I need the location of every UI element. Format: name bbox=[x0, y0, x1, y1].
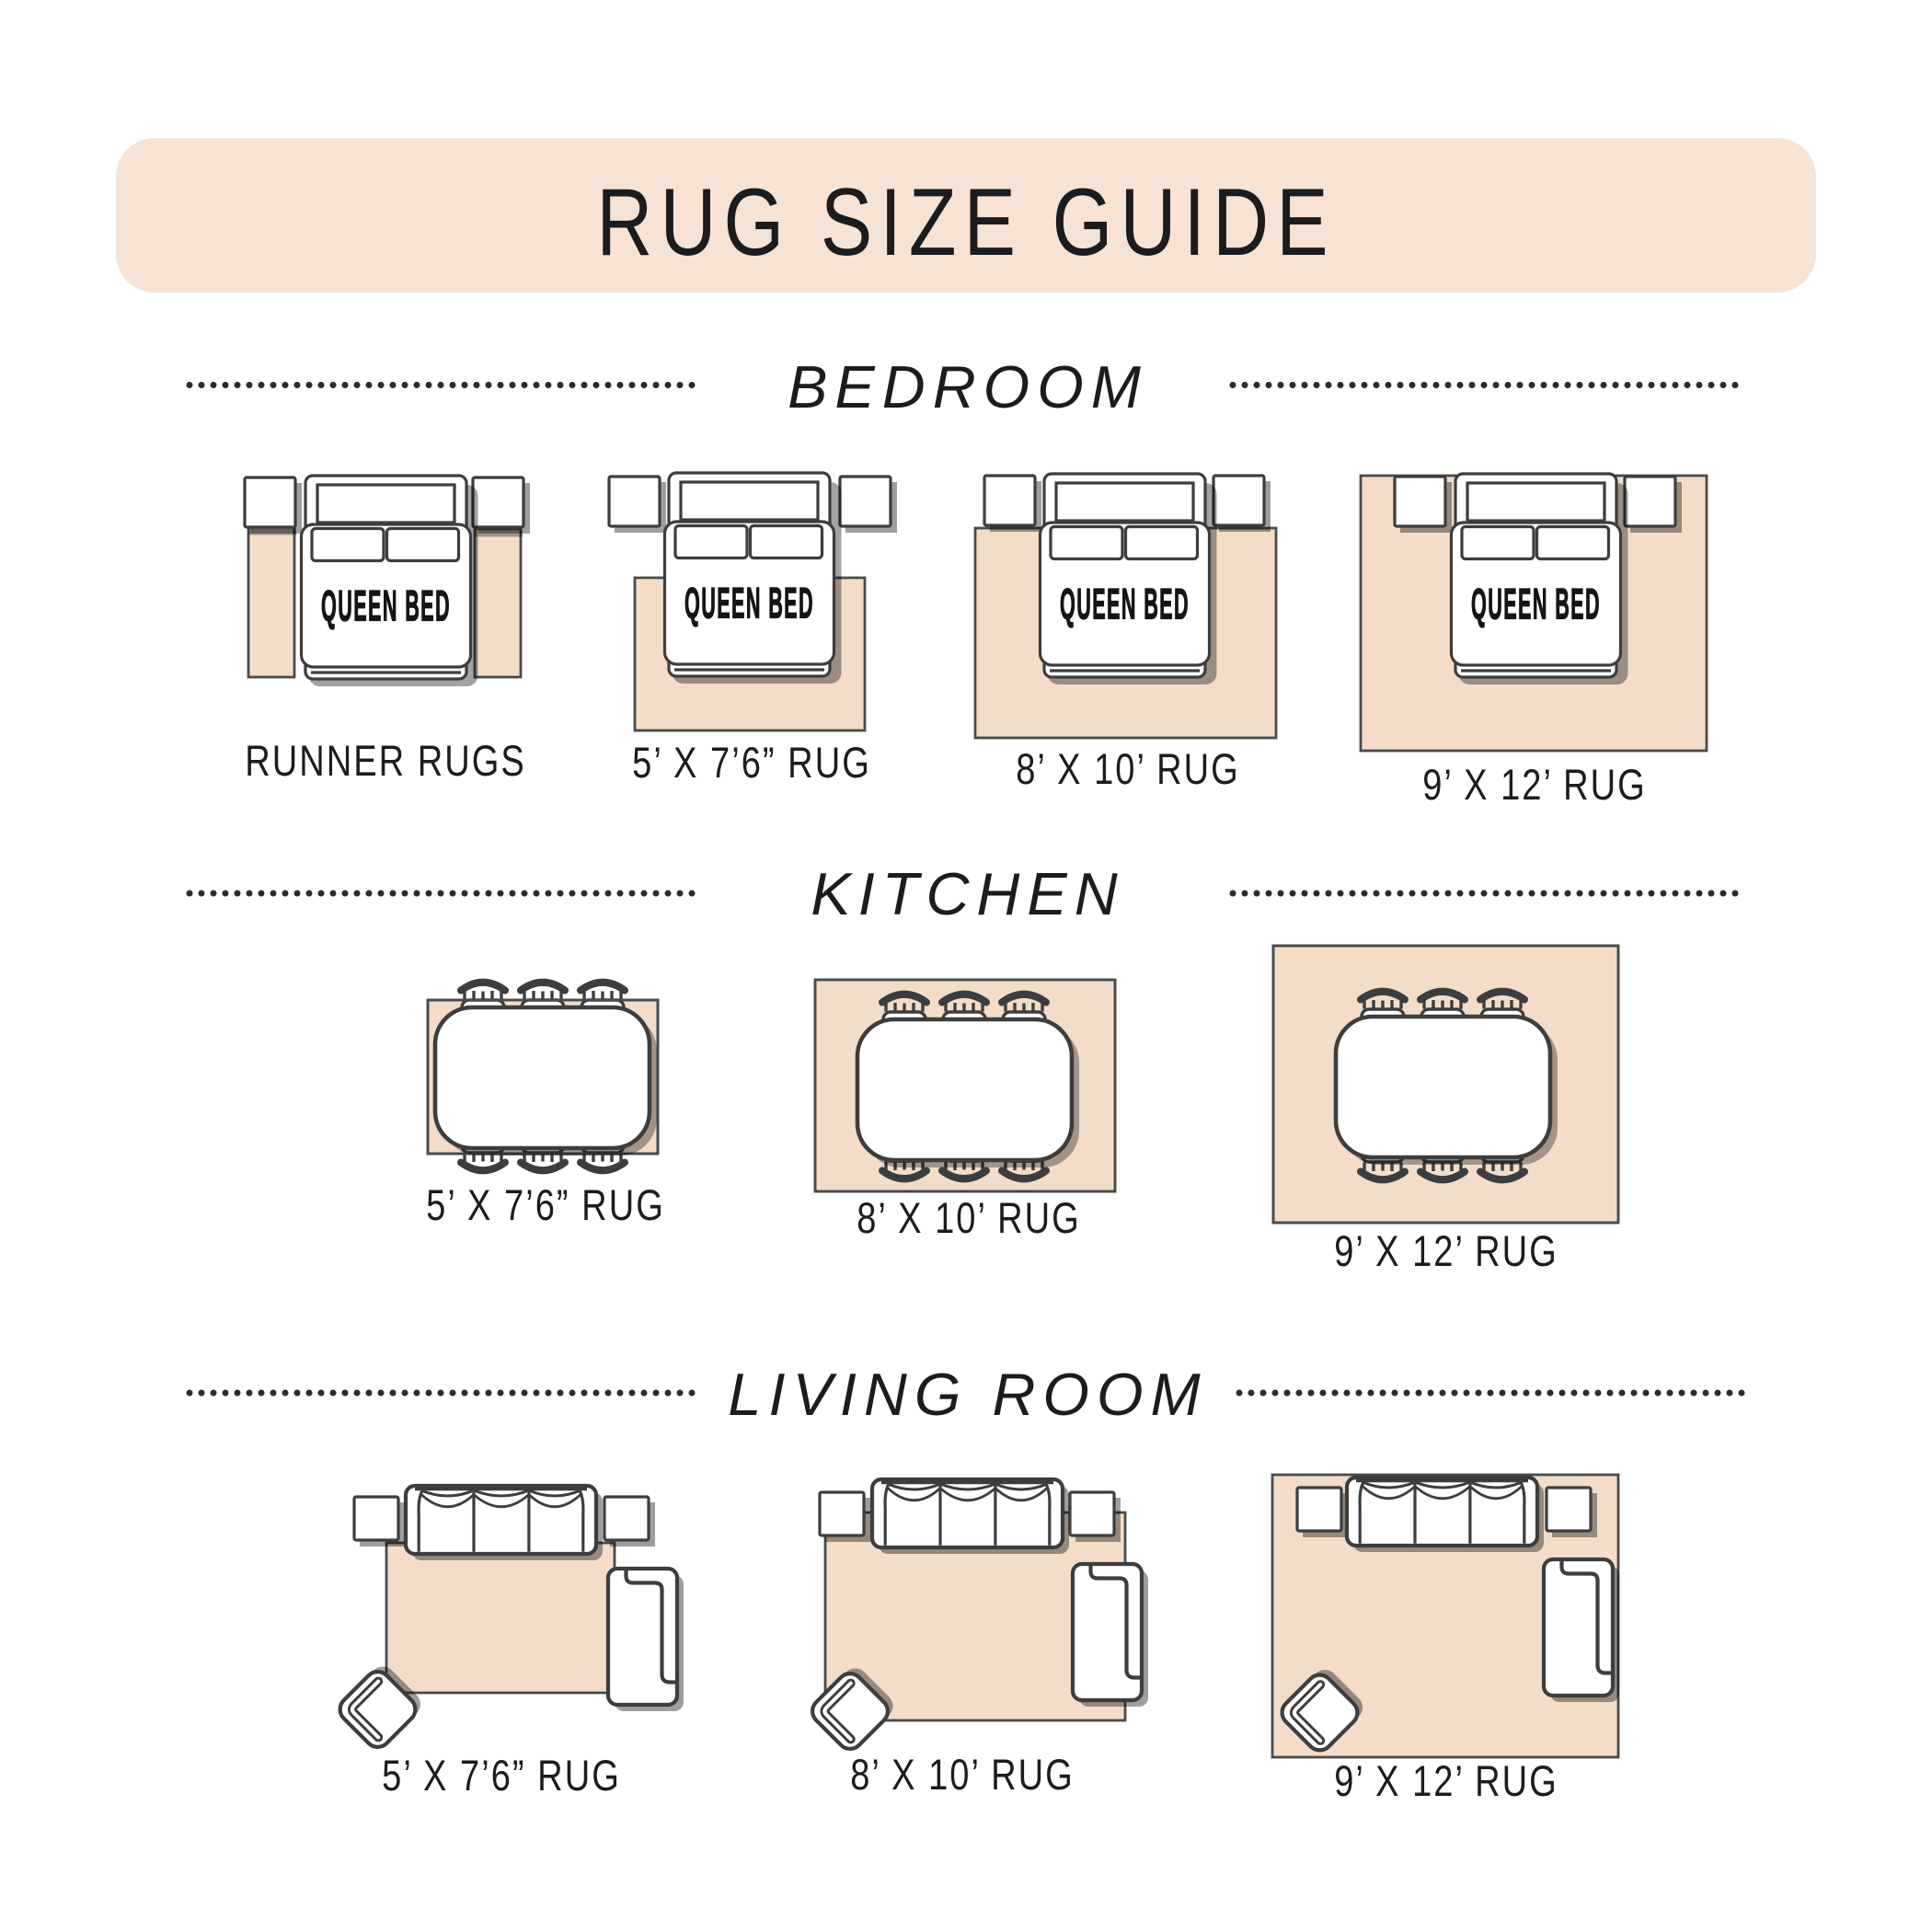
svg-text:9’ X 12’ RUG: 9’ X 12’ RUG bbox=[1334, 1757, 1558, 1806]
svg-text:RUNNER RUGS: RUNNER RUGS bbox=[245, 737, 526, 786]
svg-text:9’ X 12’ RUG: 9’ X 12’ RUG bbox=[1422, 761, 1647, 810]
svg-text:5’ X 7’6” RUG: 5’ X 7’6” RUG bbox=[382, 1752, 621, 1800]
svg-text:BEDROOM: BEDROOM bbox=[788, 353, 1148, 420]
svg-text:LIVING ROOM: LIVING ROOM bbox=[728, 1361, 1207, 1428]
svg-text:8’ X 10’ RUG: 8’ X 10’ RUG bbox=[850, 1751, 1075, 1800]
svg-text:5’ X 7’6” RUG: 5’ X 7’6” RUG bbox=[632, 739, 871, 788]
svg-text:RUG SIZE GUIDE: RUG SIZE GUIDE bbox=[596, 169, 1335, 276]
svg-text:5’ X 7’6” RUG: 5’ X 7’6” RUG bbox=[426, 1181, 665, 1230]
svg-text:8’ X 10’ RUG: 8’ X 10’ RUG bbox=[857, 1194, 1081, 1243]
svg-text:8’ X 10’ RUG: 8’ X 10’ RUG bbox=[1016, 745, 1240, 794]
svg-text:KITCHEN: KITCHEN bbox=[811, 860, 1124, 927]
svg-text:9’ X 12’ RUG: 9’ X 12’ RUG bbox=[1334, 1227, 1558, 1276]
